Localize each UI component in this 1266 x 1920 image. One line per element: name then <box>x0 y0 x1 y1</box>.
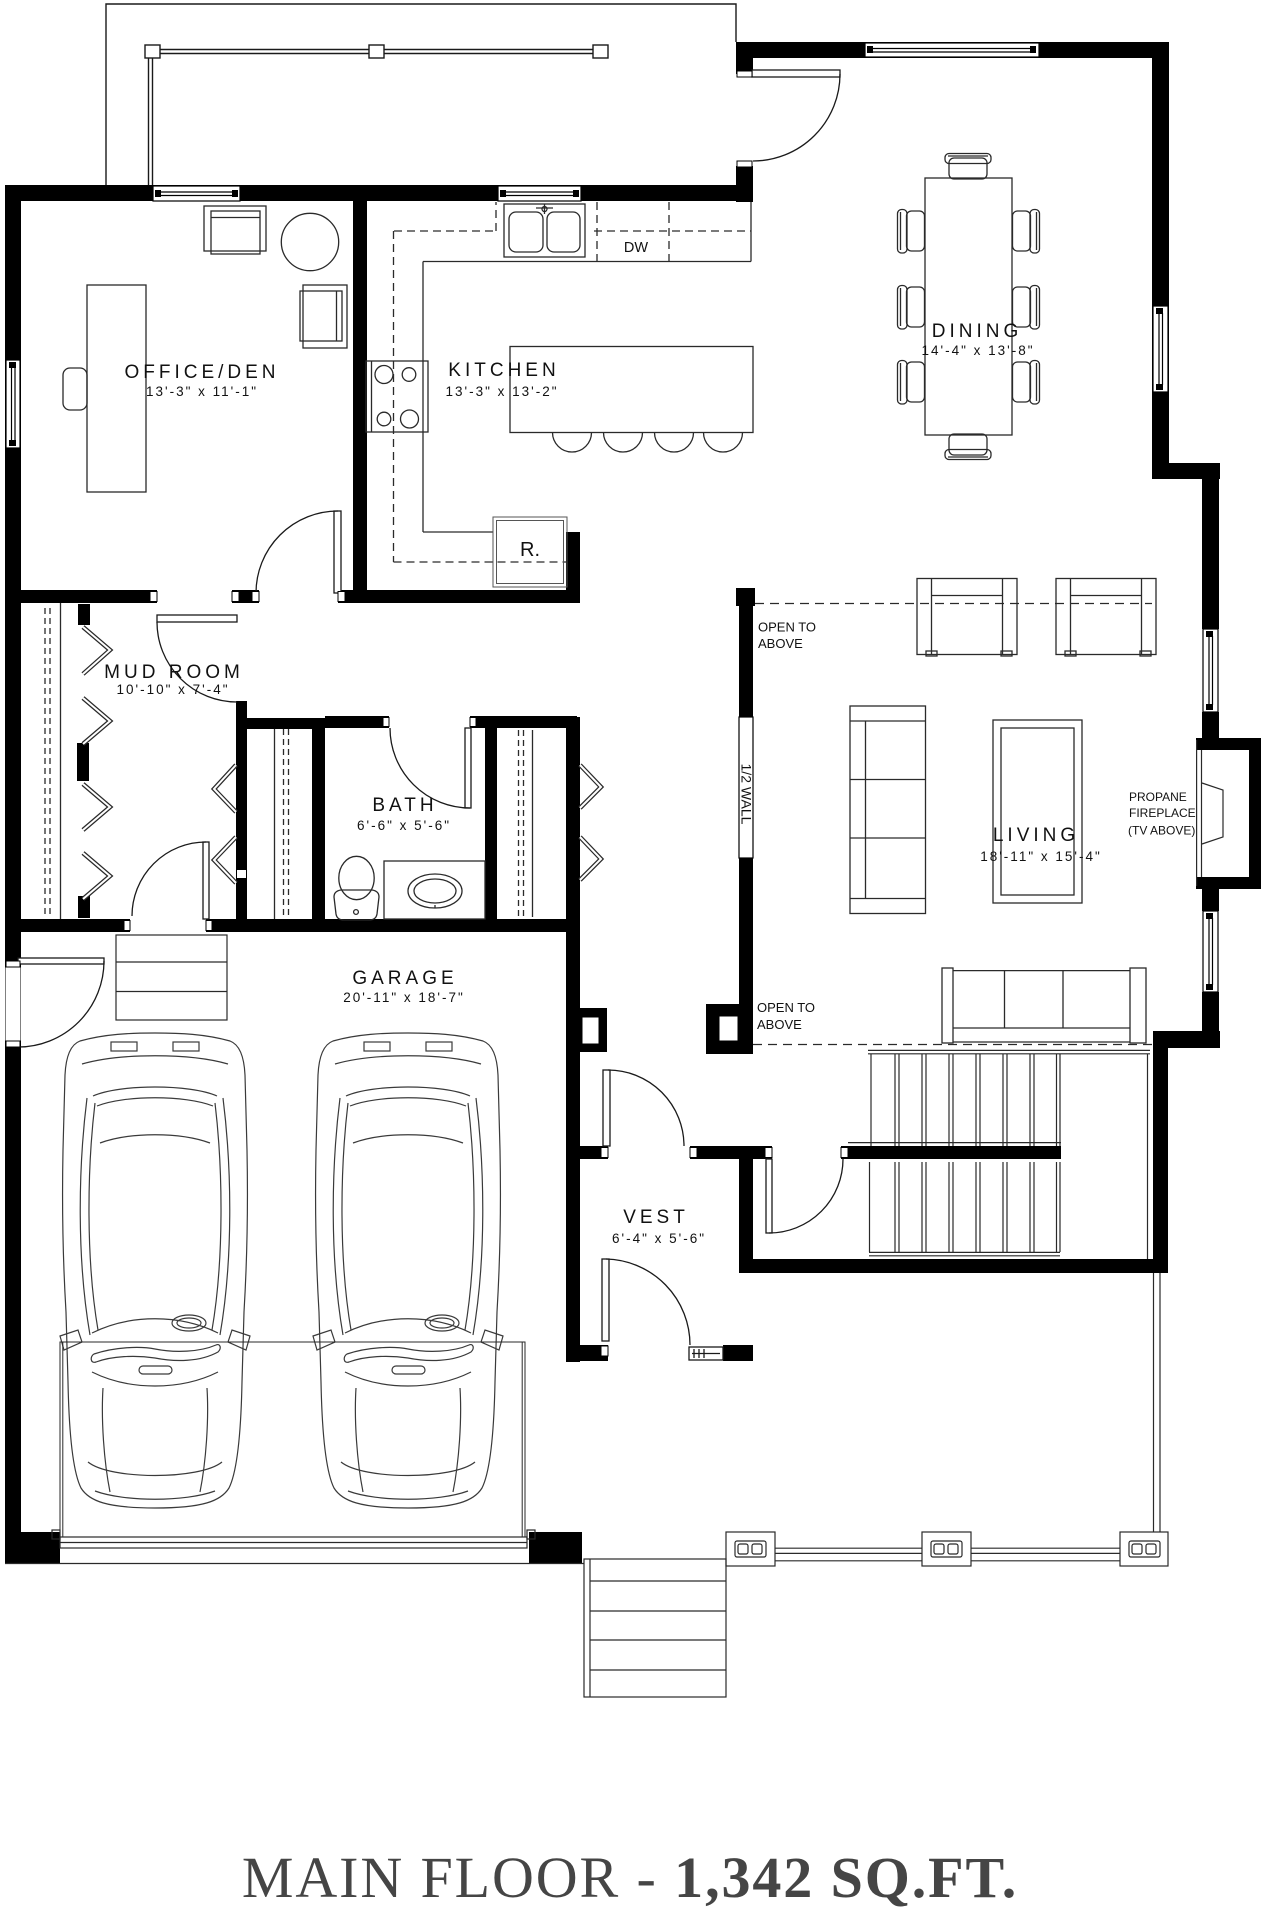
svg-text:OFFICE/DEN: OFFICE/DEN <box>124 362 279 383</box>
svg-text:KITCHEN: KITCHEN <box>448 360 559 381</box>
svg-text:10'-10" x 7'-4": 10'-10" x 7'-4" <box>116 682 229 697</box>
svg-text:ABOVE: ABOVE <box>758 636 803 651</box>
svg-text:ABOVE: ABOVE <box>757 1017 802 1032</box>
svg-text:18'-11" x 15'-4": 18'-11" x 15'-4" <box>980 849 1102 864</box>
svg-text:BATH: BATH <box>372 795 437 816</box>
svg-text:MUD ROOM: MUD ROOM <box>104 662 244 683</box>
svg-text:6'-4" x 5'-6": 6'-4" x 5'-6" <box>612 1231 706 1246</box>
svg-text:(TV ABOVE): (TV ABOVE) <box>1128 824 1195 838</box>
svg-text:14'-4" x 13'-8": 14'-4" x 13'-8" <box>921 343 1034 358</box>
svg-text:DINING: DINING <box>932 321 1023 342</box>
svg-text:MAIN FLOOR - 1,342 SQ.FT.: MAIN FLOOR - 1,342 SQ.FT. <box>242 1845 1018 1910</box>
svg-text:13'-3" x 11'-1": 13'-3" x 11'-1" <box>146 384 258 399</box>
svg-text:13'-3" x 13'-2": 13'-3" x 13'-2" <box>445 384 558 399</box>
svg-text:GARAGE: GARAGE <box>352 968 457 989</box>
svg-text:R.: R. <box>520 539 540 561</box>
svg-text:LIVING: LIVING <box>993 825 1079 846</box>
svg-text:6'-6" x 5'-6": 6'-6" x 5'-6" <box>357 818 451 833</box>
svg-text:DW: DW <box>624 240 648 256</box>
svg-text:PROPANE: PROPANE <box>1129 790 1187 804</box>
svg-text:VEST: VEST <box>623 1207 689 1228</box>
svg-text:1/2 WALL: 1/2 WALL <box>739 764 755 825</box>
svg-text:20'-11" x 18'-7": 20'-11" x 18'-7" <box>343 990 465 1005</box>
svg-text:OPEN TO: OPEN TO <box>757 1000 815 1015</box>
svg-text:OPEN TO: OPEN TO <box>758 620 816 635</box>
svg-text:FIREPLACE: FIREPLACE <box>1129 806 1196 820</box>
